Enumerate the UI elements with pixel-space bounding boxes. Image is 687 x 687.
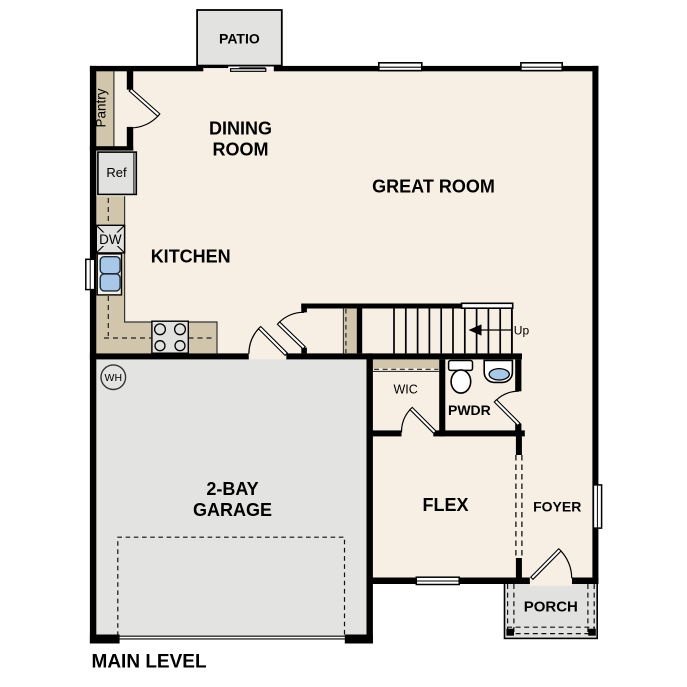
- svg-text:WH: WH: [105, 372, 123, 384]
- svg-text:KITCHEN: KITCHEN: [151, 246, 231, 266]
- svg-text:PATIO: PATIO: [219, 31, 260, 47]
- svg-text:GARAGE: GARAGE: [193, 500, 272, 520]
- svg-text:Ref: Ref: [106, 165, 127, 180]
- svg-text:FOYER: FOYER: [533, 499, 581, 515]
- svg-text:GREAT ROOM: GREAT ROOM: [372, 176, 495, 196]
- svg-text:Up: Up: [514, 323, 530, 337]
- svg-text:WIC: WIC: [393, 382, 417, 396]
- svg-text:DW: DW: [99, 232, 122, 247]
- svg-text:FLEX: FLEX: [422, 495, 468, 515]
- svg-text:PORCH: PORCH: [524, 599, 578, 616]
- svg-text:MAIN LEVEL: MAIN LEVEL: [92, 652, 207, 673]
- svg-text:2-BAY: 2-BAY: [206, 479, 258, 499]
- svg-text:DINING: DINING: [209, 118, 272, 138]
- svg-text:ROOM: ROOM: [213, 140, 269, 160]
- svg-text:PWDR: PWDR: [448, 402, 491, 418]
